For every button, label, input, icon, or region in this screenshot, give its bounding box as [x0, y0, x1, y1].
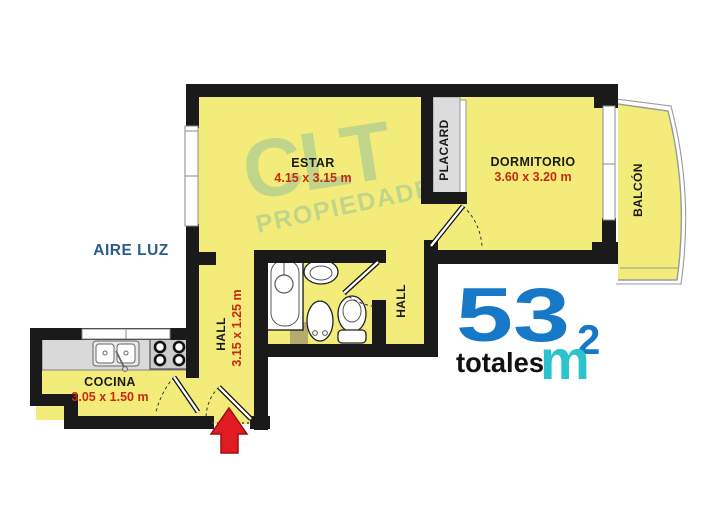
estar-window [185, 126, 198, 226]
kitchen-window [82, 329, 170, 339]
cocina-dims: 3.05 x 1.50 m [71, 390, 148, 404]
balcon-label: BALCÓN [630, 163, 645, 217]
floor-plan-image: CLT PROPIEDADES [0, 0, 720, 532]
hall-bath-label: HALL [394, 284, 408, 318]
estar-dims: 4.15 x 3.15 m [274, 171, 351, 185]
estar-label: ESTAR [291, 156, 334, 170]
bidet [307, 301, 333, 341]
aire-luz-label: AIRE LUZ [93, 242, 169, 259]
kitchen-counter [42, 338, 190, 371]
floor-plan-svg: CLT PROPIEDADES [0, 0, 720, 532]
hall-entry-dims: 3.15 x 1.25 m [230, 289, 244, 366]
bathtub [267, 256, 303, 330]
total-area: 53 2 m totales [456, 273, 600, 391]
dormitorio-label: DORMITORIO [490, 155, 575, 169]
total-unit: m [540, 328, 590, 391]
hall-entry-label: HALL [214, 317, 228, 351]
placard-label: PLACARD [437, 119, 451, 180]
dormitorio-dims: 3.60 x 3.20 m [494, 170, 571, 184]
stove [150, 339, 190, 369]
dormitorio-window [603, 106, 615, 220]
total-caption: totales [456, 347, 544, 378]
cocina-label: COCINA [84, 375, 136, 389]
